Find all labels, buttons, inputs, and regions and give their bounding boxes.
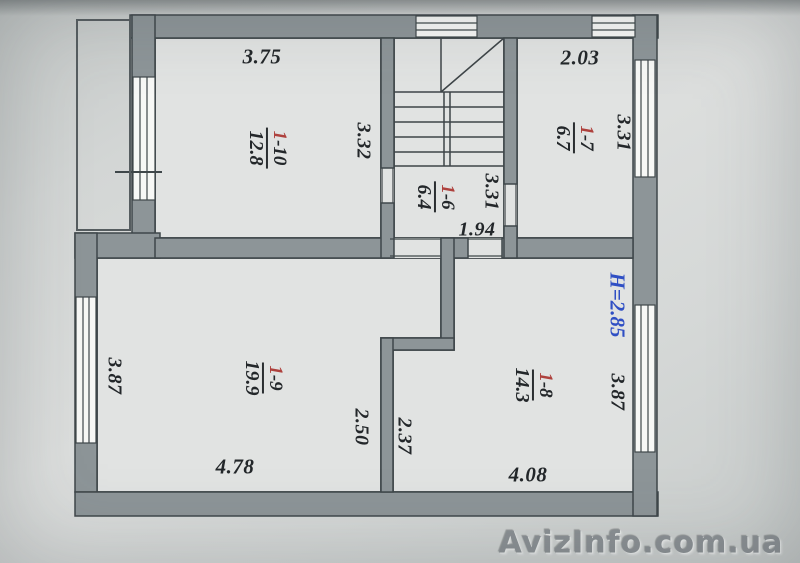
dim-bottom-right-height: 3.87 [606,374,629,411]
room-label-1-10: 1-10 12.8 [245,128,289,169]
dim-right-room-height: 3.31 [612,115,635,152]
window-top-2 [592,16,635,37]
dim-hall-width: 1.94 [459,219,496,242]
window-right-top [635,60,655,177]
wall-stair-left-b [381,203,394,258]
room-label-1-8: 1-8 14.3 [511,368,555,403]
dim-bottom-right-inner: 2.37 [393,418,416,455]
wall-mid-band-right [502,238,633,258]
watermark: AvizInfo.com.ua [499,526,784,561]
window-right-bottom [635,305,655,452]
dim-hall-height: 3.31 [480,174,503,211]
ceiling-height-label: H=2.85 [605,272,630,337]
dim-top-room-width: 3.75 [243,45,282,70]
window-top-1 [416,16,477,37]
wall-divider-lower [381,338,393,492]
wall-top [130,15,658,38]
balcony-outline [77,20,130,230]
window-left-top [133,77,155,200]
window-left-bottom [76,297,96,443]
wall-bottom [75,492,658,516]
dim-bottom-right-width: 4.08 [509,463,548,488]
dim-living-height: 3.87 [103,358,126,395]
wall-mid-band-left [155,238,390,258]
room-label-1-6: 1-6 6.4 [413,181,457,212]
dim-living-width: 4.78 [216,455,255,480]
dim-right-room-width: 2.03 [561,46,600,71]
room-label-1-7: 1-7 6.7 [552,122,596,153]
room-label-1-9: 1-9 19.9 [241,361,285,396]
dim-top-room-height: 3.32 [352,123,375,160]
wall-stair-left-a [381,38,394,168]
wall-divider-upper [441,238,454,350]
dim-living-inner: 2.50 [350,409,373,446]
floorplan-drawing [0,0,800,563]
wall-stair-right-b [504,226,517,258]
floorplan-photo: 3.75 3.32 2.03 3.31 3.31 1.94 3.87 4.78 … [0,0,800,563]
wall-stair-right-a [504,38,517,184]
